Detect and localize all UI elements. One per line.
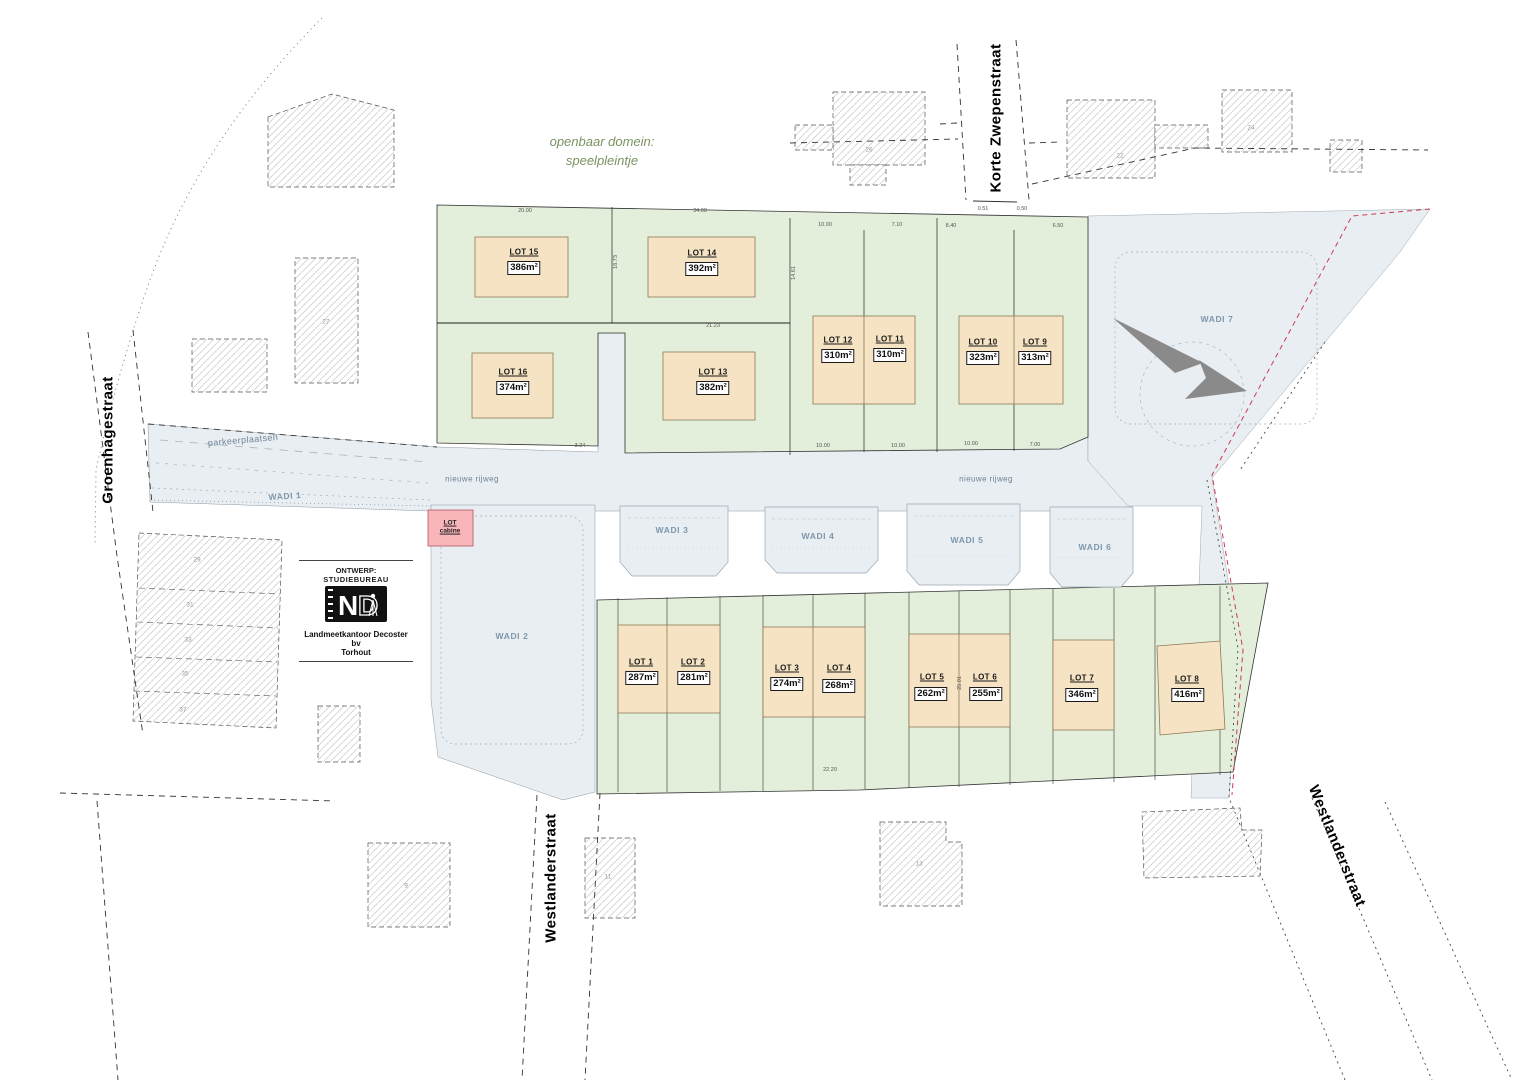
wadi-5-label: WADI 5	[951, 535, 984, 545]
cabine-label: LOT cabine	[440, 520, 461, 537]
lot-1-area: 287m²	[625, 671, 658, 685]
logo-header-line1: ONTWERP:	[299, 566, 413, 575]
house-number: 26	[865, 147, 872, 154]
street-korte-zwepenstraat: Korte Zwepenstraat	[988, 43, 1005, 192]
house-number: 35	[181, 671, 188, 678]
house-number: 9	[404, 883, 408, 890]
public-domain-line2: speelpleintje	[550, 152, 655, 171]
road-label-nieuwe-rijweg-right: nieuwe rijweg	[959, 475, 1013, 484]
logo-header-line2: STUDIEBUREAU	[299, 575, 413, 584]
lot-5-label: LOT 5	[920, 673, 944, 682]
existing-building	[850, 165, 886, 185]
house-number: 13	[915, 861, 922, 868]
korte-zwepenstraat-edge	[957, 44, 966, 200]
lot-15-label: LOT 15	[510, 248, 539, 257]
lot-12-label: LOT 12	[824, 336, 853, 345]
lot-16-label: LOT 16	[499, 368, 528, 377]
wadi-4-label: WADI 4	[802, 531, 835, 541]
existing-building	[1155, 125, 1208, 148]
public-domain-note: openbaar domein: speelpleintje	[550, 133, 655, 171]
lot-13-area: 382m²	[696, 381, 729, 395]
lot-6-label: LOT 6	[973, 673, 997, 682]
existing-building	[1142, 808, 1262, 878]
lot-3-area: 274m²	[770, 677, 803, 691]
dimension: 6.50	[1053, 223, 1064, 229]
existing-building-24	[1222, 90, 1292, 152]
dimension: 7.00	[1030, 442, 1041, 448]
lot-11-area: 310m²	[873, 348, 906, 362]
dimension: 14.61	[791, 266, 797, 280]
parcel-lot-7	[1053, 640, 1114, 730]
cabine-line1: LOT	[440, 520, 461, 528]
korte-zwepenstraat-edge	[1016, 40, 1029, 200]
house-number: 27	[322, 319, 329, 326]
lot-2-label: LOT 2	[681, 658, 705, 667]
wadi-6-label: WADI 6	[1079, 542, 1112, 552]
lot-8-area: 416m²	[1171, 688, 1204, 702]
dimension: 10.00	[964, 441, 978, 447]
lot-10-area: 323m²	[966, 351, 999, 365]
wadi-3-basin	[620, 506, 728, 576]
existing-building	[192, 339, 267, 392]
existing-building	[268, 94, 394, 187]
lot-7-area: 346m²	[1065, 688, 1098, 702]
dimension: 0.51	[978, 206, 989, 212]
dimension: 8.40	[946, 223, 957, 229]
house-number: 33	[184, 637, 191, 644]
lot-11-label: LOT 11	[876, 335, 904, 344]
cabine-line2: cabine	[440, 528, 461, 536]
parcel-lots-1-2	[618, 625, 720, 713]
wadi-2-label: WADI 2	[496, 631, 529, 641]
existing-building	[795, 125, 833, 150]
lot-9-area: 313m²	[1018, 351, 1051, 365]
lot-7-label: LOT 7	[1070, 674, 1094, 683]
dimension: 18.73	[613, 255, 619, 269]
westlanderstraat-right-edge	[1385, 802, 1512, 1080]
lot-14-area: 392m²	[685, 262, 718, 276]
dimension: 25.01	[957, 676, 963, 690]
lot-5-area: 262m²	[914, 687, 947, 701]
wadi-3-label: WADI 3	[656, 525, 689, 535]
existing-building	[318, 706, 360, 762]
lot-3-label: LOT 3	[775, 664, 799, 673]
house-number: 11	[605, 874, 612, 881]
road-label-nieuwe-rijweg-left: nieuwe rijweg	[445, 475, 499, 484]
dimension: 20.00	[518, 208, 532, 214]
street-westlanderstraat-bottom: Westlanderstraat	[543, 813, 560, 942]
svg-text:D: D	[358, 590, 378, 621]
westlanderstraat-edge	[585, 793, 600, 1080]
lot-6-area: 255m²	[969, 687, 1002, 701]
lot-10-label: LOT 10	[969, 338, 998, 347]
lot-14-label: LOT 14	[688, 249, 717, 258]
svg-text:N: N	[338, 590, 358, 621]
lot-16-area: 374m²	[496, 381, 529, 395]
house-number: 29	[193, 557, 200, 564]
street-groenhagestraat: Groenhagestraat	[100, 376, 117, 504]
existing-building	[1330, 140, 1362, 172]
existing-building-26	[833, 92, 925, 165]
lot-2-area: 281m²	[677, 671, 710, 685]
dimension: 10.00	[816, 443, 830, 449]
dimension: 22.20	[823, 767, 837, 773]
existing-building-9	[368, 843, 450, 927]
logo-city: Torhout	[299, 648, 413, 657]
lot-12-area: 310m²	[821, 349, 854, 363]
dimension: 21.23	[706, 323, 720, 329]
dimension: 10.00	[891, 443, 905, 449]
lot-9-label: LOT 9	[1023, 338, 1047, 347]
lot-8-label: LOT 8	[1175, 675, 1199, 684]
existing-rowhouses	[133, 533, 282, 728]
lot-13-label: LOT 13	[699, 368, 728, 377]
logo-company: Landmeetkantoor Decoster bv	[299, 630, 413, 648]
house-number: 31	[186, 602, 193, 609]
groenhagestraat-edge	[133, 330, 153, 512]
lot-1-label: LOT 1	[629, 658, 653, 667]
nd-logo: N D	[325, 586, 387, 622]
wadi-2-area	[431, 505, 595, 800]
lot-4-area: 268m²	[822, 679, 855, 693]
westlanderstraat-edge	[522, 795, 537, 1080]
subdivision-plan: openbaar domein: speelpleintje Groenhage…	[0, 0, 1529, 1080]
dimension: 3.24	[575, 443, 586, 449]
dimension: 7.10	[892, 222, 903, 228]
dimension: 10.00	[818, 222, 832, 228]
lot-15-area: 386m²	[507, 261, 540, 275]
public-domain-line1: openbaar domein:	[550, 133, 655, 152]
designer-block: ONTWERP: STUDIEBUREAU N D Landmeetkantoo…	[299, 560, 413, 662]
plan-geometry	[0, 0, 1529, 1080]
house-number: 37	[179, 707, 186, 714]
house-number: 22	[1116, 153, 1123, 160]
wadi-7-label: WADI 7	[1201, 314, 1234, 324]
house-number: 24	[1247, 125, 1254, 132]
dimension: 0.50	[1017, 206, 1028, 212]
lot-4-label: LOT 4	[827, 664, 851, 673]
dimension: 34.00	[693, 208, 707, 214]
